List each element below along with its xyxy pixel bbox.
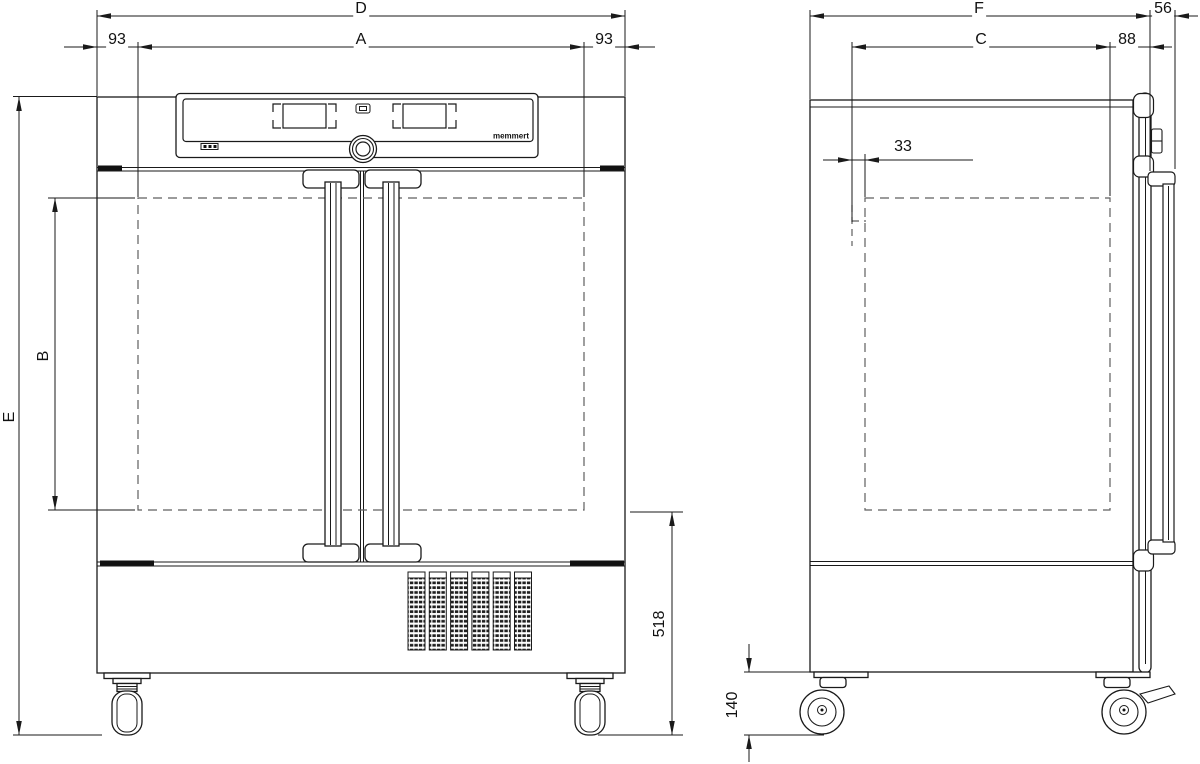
control-panel bbox=[176, 94, 538, 163]
display-right bbox=[393, 104, 456, 128]
dim-label-door-thickness: 88 bbox=[1116, 32, 1138, 48]
side-view bbox=[800, 93, 1175, 734]
memmert-logo: memmert bbox=[493, 132, 529, 141]
technical-drawing-linework bbox=[0, 0, 1200, 764]
dim-label-interior-depth: C bbox=[973, 32, 989, 48]
side-body-outline bbox=[810, 100, 1133, 672]
door-latch bbox=[1152, 129, 1163, 153]
side-door bbox=[1134, 93, 1176, 673]
dim-label-overall-width: D bbox=[353, 1, 369, 17]
dim-label-handle-projection: 56 bbox=[1152, 1, 1174, 17]
front-view bbox=[97, 94, 625, 736]
dim-label-interior-width: A bbox=[354, 32, 369, 48]
dim-label-floor-to-chamber: 518 bbox=[652, 609, 668, 640]
dim-label-interior-height: B bbox=[36, 349, 52, 364]
dim-label-rear-clearance: 33 bbox=[892, 139, 914, 155]
dim-label-left-inset: 93 bbox=[106, 32, 128, 48]
side-casters bbox=[800, 672, 1175, 734]
caster-brake-lever bbox=[1140, 686, 1175, 703]
side-door-handle bbox=[1148, 172, 1175, 554]
display-left bbox=[273, 104, 336, 128]
dimensional-drawing-page: D A 93 93 E B 518 F 56 C 88 33 140 memme… bbox=[0, 0, 1200, 764]
panel-vent-dots bbox=[201, 144, 218, 150]
rotary-knob-icon bbox=[350, 136, 377, 163]
dim-label-overall-height: E bbox=[2, 410, 18, 425]
front-casters bbox=[104, 673, 613, 735]
dim-label-right-inset: 93 bbox=[593, 32, 615, 48]
dim-label-overall-depth: F bbox=[972, 1, 986, 17]
dim-label-caster-height: 140 bbox=[725, 690, 741, 721]
